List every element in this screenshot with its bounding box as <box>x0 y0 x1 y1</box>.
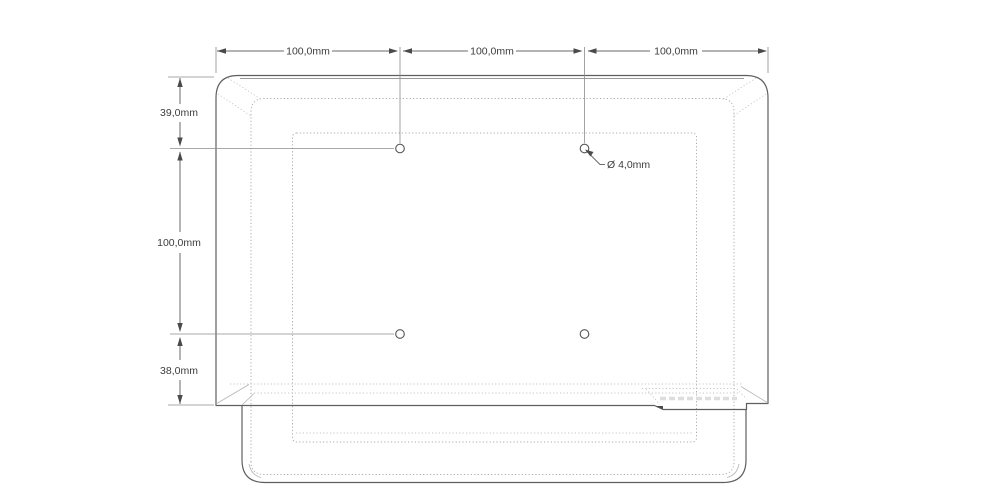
dim-arrow <box>574 48 583 53</box>
mount-recess-hidden-outline <box>293 133 697 442</box>
dim-left-2-label: 100,0mm <box>157 237 201 249</box>
device-stand-outline <box>242 406 746 483</box>
top-left-chamfer-edges <box>218 78 262 116</box>
dim-arrow <box>177 138 182 147</box>
body-bottom-right-chamfer <box>741 387 768 404</box>
vesa-mounting-holes <box>396 144 589 338</box>
top-dim-extension-lines <box>216 47 768 143</box>
dim-arrow <box>389 48 398 53</box>
connector-recess-hidden-edge <box>642 389 747 405</box>
dim-left-1-label: 39,0mm <box>160 107 198 119</box>
dim-arrow <box>177 152 182 161</box>
mounting-hole-top-left <box>396 144 405 153</box>
left-dim-extension-lines <box>168 77 394 405</box>
dim-arrow <box>588 48 597 53</box>
body-bottom-left-chamfer <box>216 385 254 406</box>
hidden-edge-geometry <box>218 78 766 475</box>
dim-arrow <box>758 48 767 53</box>
cad-drawing-page: 100,0mm 100,0mm 100,0mm 39,0mm 100,0mm 3… <box>0 0 990 500</box>
hole-diameter-label: Ø 4,0mm <box>607 159 650 171</box>
cad-drawing-canvas: 100,0mm 100,0mm 100,0mm 39,0mm 100,0mm 3… <box>0 0 990 500</box>
dim-arrow <box>177 337 182 346</box>
dim-top-3-label: 100,0mm <box>654 46 698 58</box>
dim-arrow <box>177 323 182 332</box>
dim-left-3-label: 38,0mm <box>160 365 198 377</box>
mounting-hole-bottom-left <box>396 330 405 339</box>
dim-arrow <box>177 395 182 404</box>
dimension-annotations: 100,0mm 100,0mm 100,0mm 39,0mm 100,0mm 3… <box>157 46 768 406</box>
device-body-outline <box>216 76 768 410</box>
stand-left-corner-chamfer <box>249 464 261 478</box>
dim-top-1-label: 100,0mm <box>286 46 330 58</box>
device-geometry <box>216 76 768 483</box>
top-right-chamfer-edges <box>722 78 766 116</box>
mounting-hole-bottom-right <box>580 330 589 339</box>
bezel-hidden-outline <box>251 99 734 475</box>
dim-arrow <box>177 78 182 87</box>
dim-top-2-label: 100,0mm <box>470 46 514 58</box>
stand-right-corner-chamfer <box>727 464 739 478</box>
dim-arrow <box>403 48 412 53</box>
dim-arrow <box>217 48 226 53</box>
